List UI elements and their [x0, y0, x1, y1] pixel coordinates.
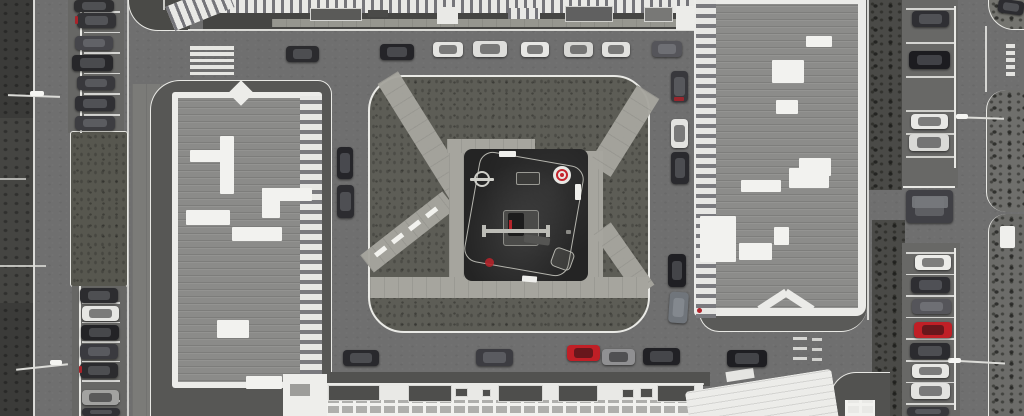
parking-bay-east-top: [902, 0, 958, 188]
roof-terrace: [498, 385, 543, 402]
curb-top-road-north: [188, 29, 702, 31]
roof-terrace: [482, 389, 491, 397]
car: [564, 42, 593, 57]
roof-structure: [776, 100, 798, 114]
yield-dash-column: [1006, 44, 1015, 48]
car: [433, 42, 463, 57]
bay-tick-west-top: [84, 93, 120, 95]
roof-structure: [700, 216, 736, 262]
west-building-facade: [300, 96, 322, 384]
car-red: [914, 322, 952, 338]
entrance-canopy: [368, 10, 388, 17]
car: [909, 134, 949, 151]
crosswalk-stripe: [190, 72, 234, 76]
bay-tick-east-bottom: [906, 317, 954, 319]
bay-tick-east-bottom: [906, 295, 954, 297]
roof-terrace: [622, 389, 634, 398]
car: [671, 119, 688, 148]
roof-structure: [232, 227, 282, 241]
entrance-canopy: [508, 8, 540, 19]
spinner-red-hub: [560, 173, 564, 177]
roof-structure: [806, 36, 832, 47]
car: [74, 0, 114, 12]
east-building-facade: [696, 0, 716, 318]
bay-tick-east-top-a: [906, 42, 954, 44]
car: [652, 41, 682, 57]
red-taillight-accent: [674, 97, 684, 101]
car: [602, 349, 635, 365]
car: [80, 288, 118, 303]
roof-structure: [262, 188, 280, 218]
car: [476, 349, 513, 366]
car: [727, 350, 767, 367]
roof-terrace: [328, 385, 380, 401]
bay-tick-east-bottom: [906, 338, 954, 340]
car: [909, 51, 950, 69]
lamp-head: [30, 91, 44, 96]
car: [912, 11, 949, 27]
car-red: [567, 345, 600, 361]
crosswalk-stripe: [190, 46, 234, 50]
giveway-dash-b: [812, 358, 822, 361]
wall-line-1: [0, 178, 26, 180]
car: [337, 147, 353, 179]
van-roof-highlight: [912, 196, 948, 208]
bench-top: [499, 151, 516, 157]
bay-tick-west-bottom: [82, 380, 120, 382]
south-building-far-right: [845, 400, 875, 416]
car: [82, 306, 119, 321]
bay-tick-west-top: [84, 32, 120, 34]
car: [337, 185, 354, 218]
yield-dash-column: [1006, 51, 1015, 55]
crosswalk-stripe: [190, 52, 234, 56]
entrance-canopy: [644, 7, 673, 22]
swing-post-left: [482, 225, 486, 237]
red-taillight-accent: [79, 366, 82, 373]
giveway-dash-a: [793, 357, 807, 360]
roof-structure: [217, 320, 249, 338]
car: [911, 383, 950, 399]
curb-left-road-west: [33, 0, 35, 416]
lamp-head: [948, 358, 961, 363]
roof-structure: [186, 210, 230, 225]
car: [912, 299, 951, 314]
bay-tick-east-top-b: [906, 156, 954, 158]
car: [915, 255, 951, 270]
giveway-dash-b: [812, 338, 822, 341]
car: [80, 344, 118, 359]
bay-line-east-bottom: [954, 248, 956, 410]
wall-line-2: [0, 265, 46, 267]
giveway-dash-a: [793, 337, 807, 340]
crosswalk-stripe: [190, 65, 234, 69]
yield-dash-column: [1006, 58, 1015, 62]
car: [82, 408, 120, 416]
roof-terrace: [640, 388, 653, 398]
bay-tick-east-bottom: [906, 360, 954, 362]
car: [671, 152, 689, 184]
car: [80, 363, 118, 378]
red-hydrant-dot: [697, 308, 702, 313]
aerial-courtyard-photo: [0, 0, 1024, 416]
curb-left-road-east: [127, 0, 129, 416]
car: [602, 42, 630, 57]
yield-dash-column: [1006, 65, 1015, 69]
car: [911, 277, 950, 293]
roof-structure: [772, 60, 804, 83]
roof-structure: [739, 243, 772, 260]
giveway-dash-a: [793, 347, 807, 350]
yield-dash-column: [1006, 72, 1015, 76]
roof-structure: [220, 136, 234, 194]
angled-canopy: [725, 368, 754, 382]
median-mid: [986, 90, 1024, 212]
white-utility-post: [1000, 226, 1015, 248]
car: [473, 41, 507, 57]
car: [77, 13, 116, 28]
play-detail: [566, 230, 571, 234]
car: [343, 350, 379, 366]
roof-structure: [799, 158, 831, 176]
car: [380, 44, 414, 60]
swing-bar: [483, 229, 550, 233]
bay-tick-west-top: [84, 73, 120, 75]
bay-tick-east-top-a: [906, 8, 954, 10]
car: [72, 55, 113, 71]
swing-post-right: [546, 225, 550, 237]
car: [75, 96, 115, 111]
bay-tick-east-bottom: [906, 252, 954, 254]
bay-tick-east-bottom: [906, 274, 954, 276]
photo-canvas: [0, 0, 1024, 416]
south-building-checker-facade: [283, 400, 703, 416]
spring-rider-red: [485, 258, 494, 267]
car: [286, 46, 319, 62]
roof-structure: [774, 227, 789, 245]
car: [81, 325, 119, 340]
car: [75, 116, 115, 130]
entrance-canopy: [565, 6, 613, 22]
car: [82, 390, 119, 405]
car: [668, 254, 686, 287]
lamp-head: [50, 360, 62, 365]
bay-tick-west-bottom: [82, 322, 120, 324]
curb-right-road-east: [985, 26, 987, 92]
car: [77, 76, 115, 90]
bay-end-line: [903, 186, 955, 188]
car: [910, 343, 950, 359]
roof-terrace: [558, 385, 598, 402]
entrance-canopy: [310, 8, 362, 21]
bench-right: [575, 184, 581, 200]
roof-terrace: [408, 385, 452, 402]
bay-tick-east-bottom: [906, 403, 954, 405]
red-taillight-accent: [75, 16, 78, 24]
bay-tick-west-bottom: [82, 341, 120, 343]
car: [907, 407, 949, 416]
car: [75, 36, 113, 50]
south-building-west-detail: [290, 384, 310, 396]
planting-strip-east-road-top: [868, 0, 902, 190]
roof-terrace: [455, 388, 468, 397]
lamp-head: [956, 114, 968, 119]
giveway-dash-b: [812, 348, 822, 351]
car: [668, 291, 689, 323]
car: [912, 364, 949, 378]
bay-tick-east-top-b: [906, 110, 954, 112]
car: [911, 114, 948, 129]
carousel-bar: [470, 178, 494, 181]
east-building-roof: [700, 4, 858, 308]
car: [521, 42, 549, 57]
bay-tick-west-top: [84, 52, 120, 54]
bay-tick-east-top-a: [906, 76, 954, 78]
picnic-table: [516, 172, 540, 185]
curb-stub-top: [163, 0, 165, 10]
bay-line-east-top: [954, 6, 956, 168]
curb-right-road-west: [867, 0, 869, 320]
bench-bottom: [522, 275, 537, 282]
roof-structure: [741, 180, 781, 192]
grass-verge-west: [70, 131, 128, 287]
roof-structure: [246, 376, 282, 389]
planting-strip-west-light: [0, 118, 34, 303]
car: [643, 348, 680, 365]
entrance-canopy: [437, 7, 458, 24]
crosswalk-stripe: [190, 59, 234, 63]
